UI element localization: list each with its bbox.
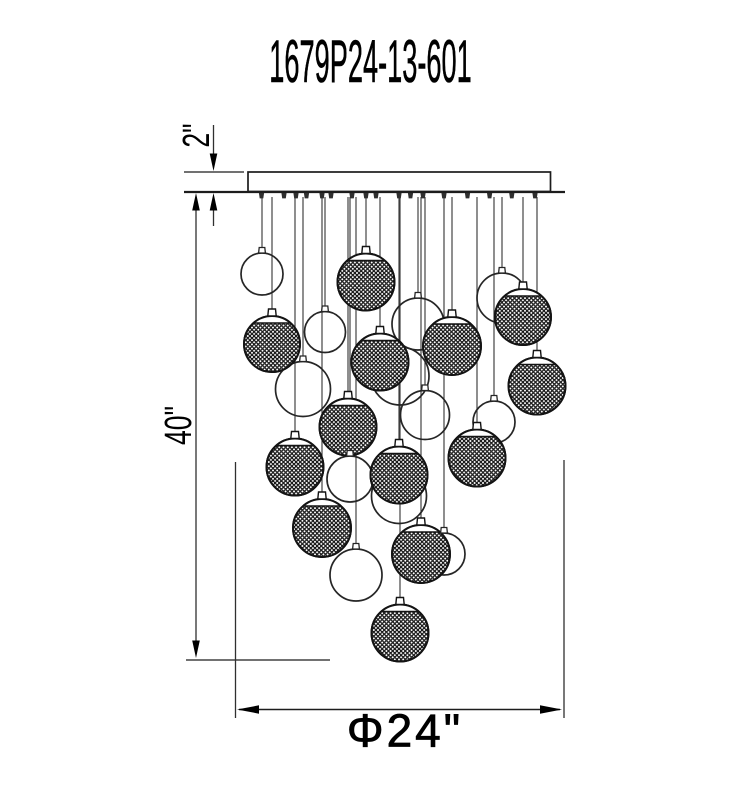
svg-text:40": 40": [156, 406, 199, 445]
svg-text:Φ24": Φ24": [347, 705, 463, 757]
svg-text:2": 2": [174, 123, 217, 147]
svg-text:1679P24-13-601: 1679P24-13-601: [269, 28, 471, 95]
